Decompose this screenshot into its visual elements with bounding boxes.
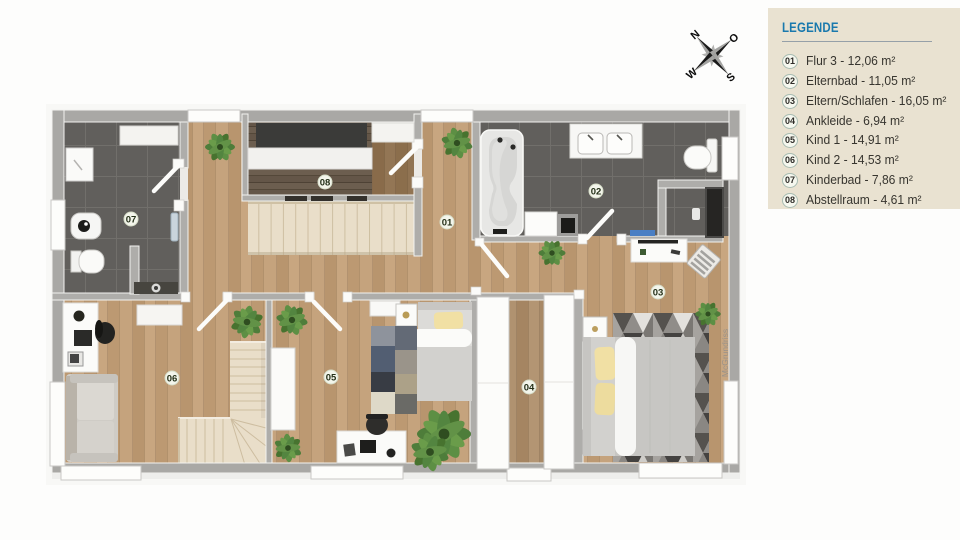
svg-text:McGrundriss: McGrundriss bbox=[720, 329, 730, 377]
svg-text:01: 01 bbox=[442, 218, 453, 229]
svg-text:03: 03 bbox=[653, 288, 664, 299]
svg-text:04: 04 bbox=[524, 383, 535, 394]
svg-text:02: 02 bbox=[591, 187, 602, 198]
svg-text:05: 05 bbox=[326, 373, 337, 384]
svg-text:08: 08 bbox=[320, 178, 331, 189]
svg-text:06: 06 bbox=[167, 374, 178, 385]
svg-text:07: 07 bbox=[126, 215, 137, 226]
